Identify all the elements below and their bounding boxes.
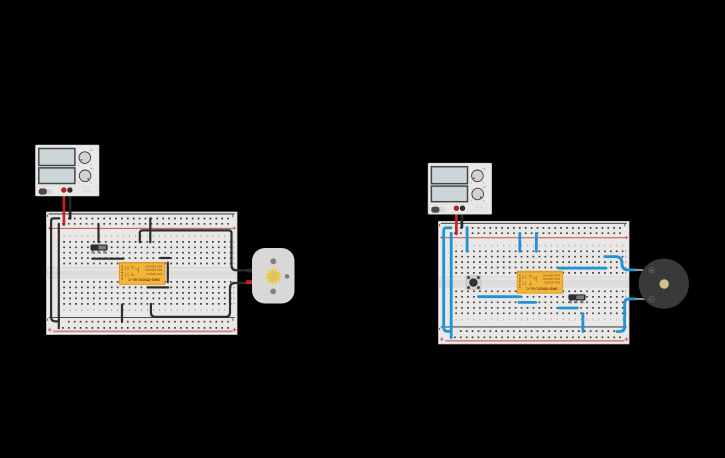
svg-text:10A 125VAC: 10A 125VAC — [144, 268, 162, 272]
svg-text:10A 30VDC: 10A 30VDC — [543, 281, 560, 285]
svg-text:10A 125VAC: 10A 125VAC — [542, 277, 560, 281]
svg-text:10A 250VAC: 10A 250VAC — [542, 273, 560, 277]
svg-text:10A 250VAC: 10A 250VAC — [144, 265, 162, 269]
svg-text:SRD-05VDC-SL-C: SRD-05VDC-SL-C — [526, 286, 558, 290]
svg-text:SRD-05VDC-SL-C: SRD-05VDC-SL-C — [128, 278, 160, 282]
svg-text:10A 30VDC: 10A 30VDC — [145, 272, 162, 276]
